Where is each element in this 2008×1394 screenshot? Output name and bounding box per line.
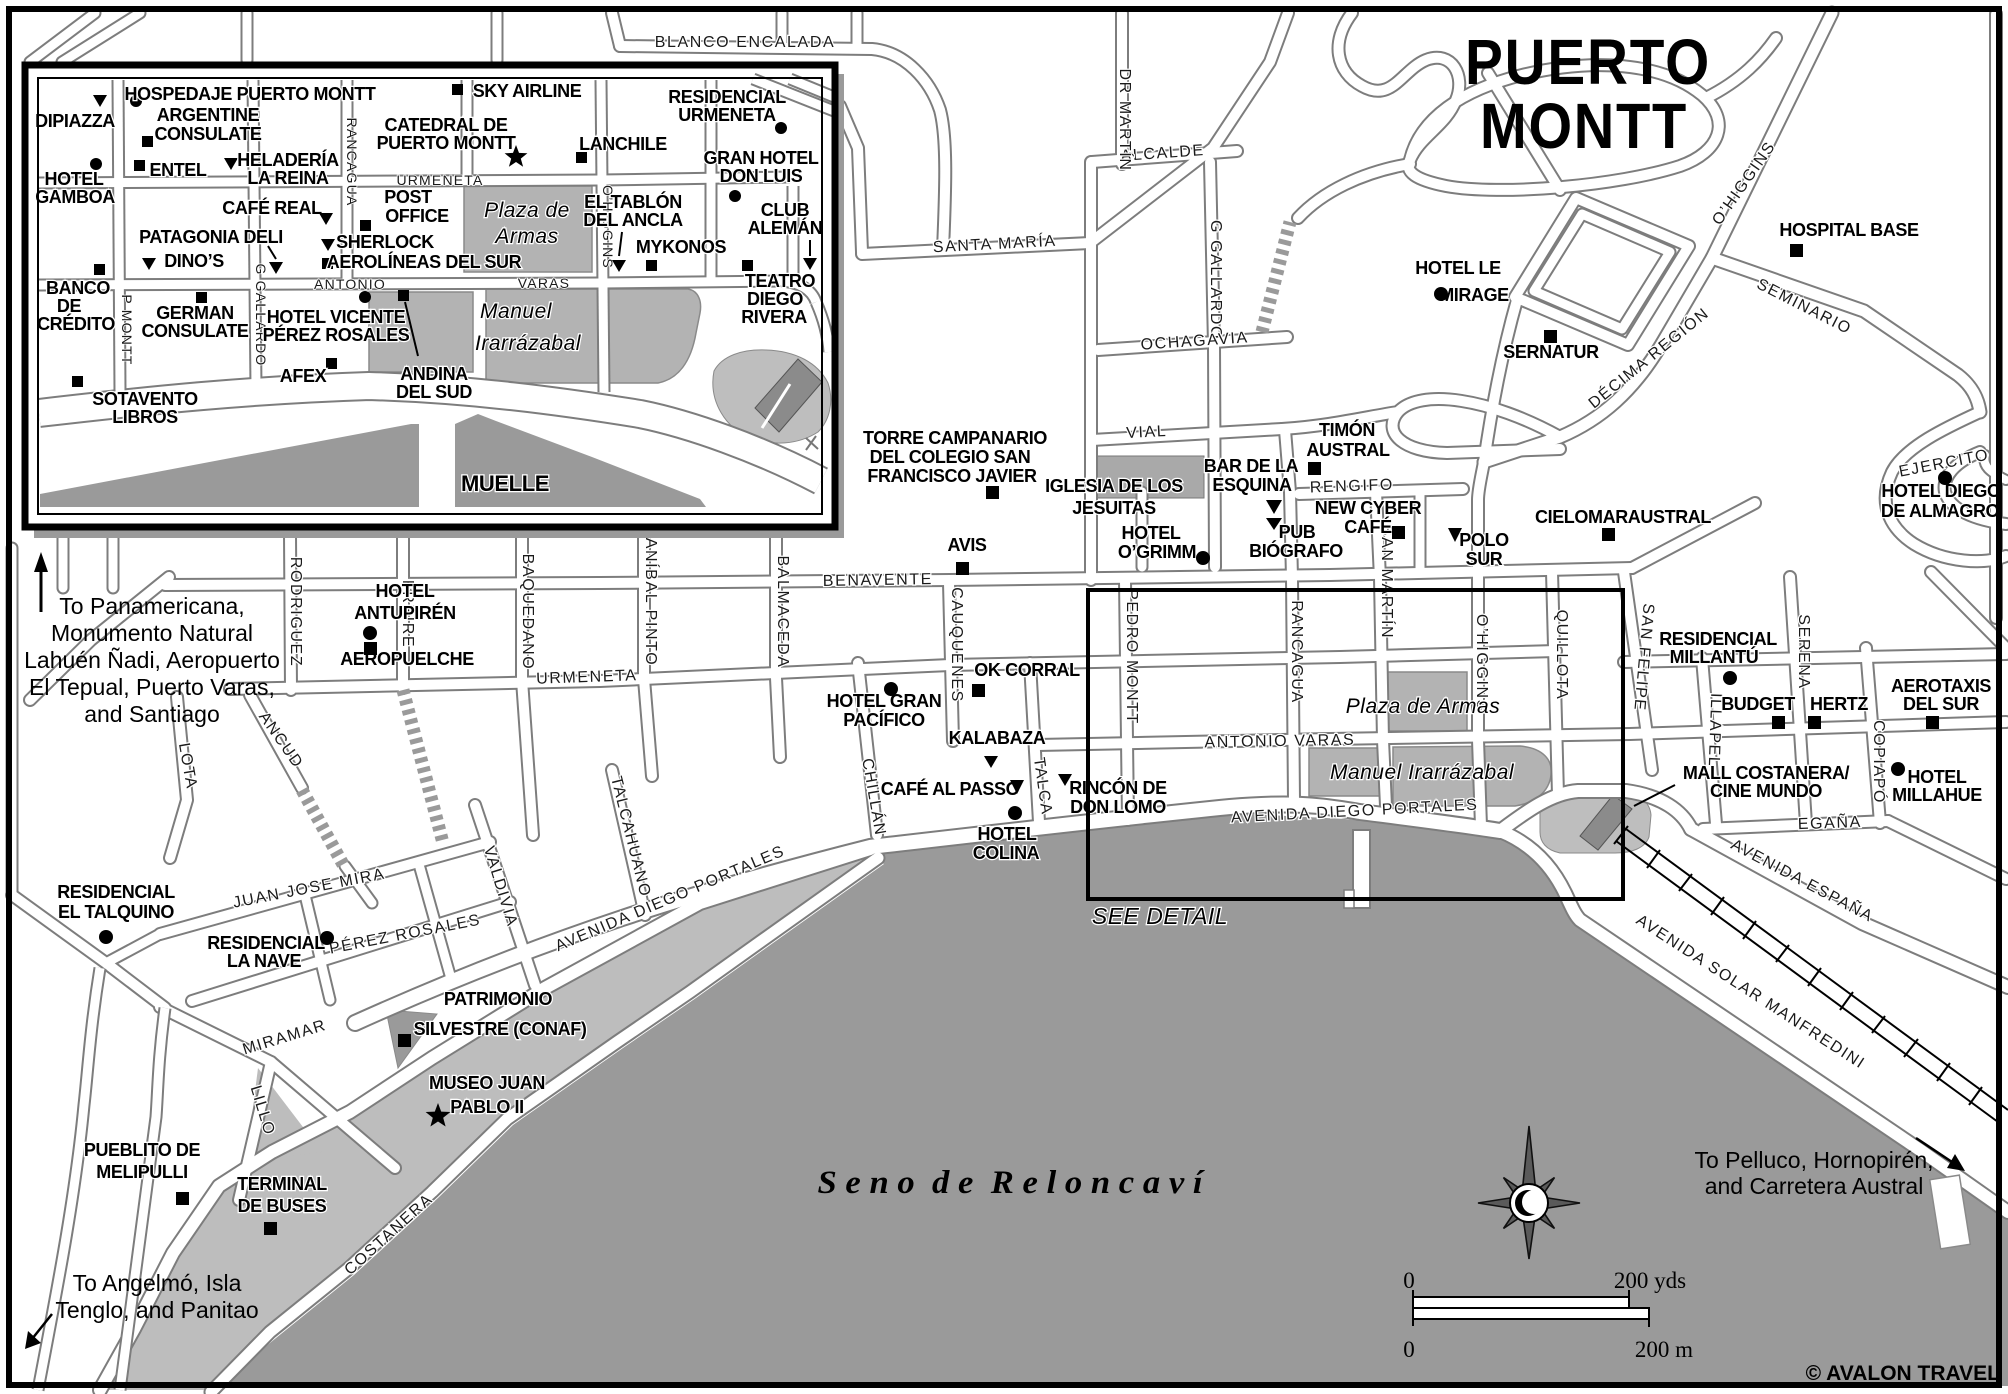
svg-text:and Carretera Austral: and Carretera Austral <box>1705 1173 1924 1199</box>
svg-text:RODRIGUEZ: RODRIGUEZ <box>287 557 304 667</box>
svg-text:ALEMÁN: ALEMÁN <box>748 217 823 238</box>
svg-text:DEL SUD: DEL SUD <box>396 382 472 402</box>
svg-text:Plaza de: Plaza de <box>484 199 570 222</box>
svg-text:HOTEL: HOTEL <box>978 824 1037 844</box>
svg-text:ANTONIO: ANTONIO <box>314 276 386 292</box>
svg-text:PUERTO: PUERTO <box>1465 26 1711 98</box>
svg-text:and Santiago: and Santiago <box>84 701 220 727</box>
svg-text:SEE DETAIL: SEE DETAIL <box>1092 903 1228 929</box>
svg-text:SHERLOCK: SHERLOCK <box>336 232 434 252</box>
svg-text:DIPIAZZA: DIPIAZZA <box>35 111 115 131</box>
svg-text:AEROTAXIS: AEROTAXIS <box>1891 676 1991 696</box>
svg-text:FRANCISCO JAVIER: FRANCISCO JAVIER <box>867 466 1037 486</box>
svg-text:PUEBLITO DE: PUEBLITO DE <box>84 1140 201 1160</box>
svg-text:HOTEL: HOTEL <box>1122 523 1181 543</box>
svg-text:© AVALON TRAVEL: © AVALON TRAVEL <box>1806 1362 2001 1385</box>
svg-text:SAN MARTÍN: SAN MARTÍN <box>1378 525 1397 639</box>
svg-text:AUSTRAL: AUSTRAL <box>1306 440 1390 460</box>
svg-text:PATRIMONIO: PATRIMONIO <box>444 989 553 1009</box>
svg-text:KALABAZA: KALABAZA <box>949 728 1046 748</box>
svg-text:AVIS: AVIS <box>947 535 986 555</box>
svg-text:DINO’S: DINO’S <box>164 251 224 271</box>
svg-text:HOTEL: HOTEL <box>45 169 104 189</box>
svg-text:CONSULATE: CONSULATE <box>141 321 248 341</box>
svg-text:HOTEL DIEGO: HOTEL DIEGO <box>1881 481 2001 501</box>
svg-text:SERNATUR: SERNATUR <box>1503 342 1599 362</box>
svg-text:HOTEL: HOTEL <box>376 581 435 601</box>
svg-text:POST: POST <box>384 187 432 207</box>
svg-text:EL TABLÓN: EL TABLÓN <box>584 191 682 212</box>
svg-text:PÉREZ ROSALES: PÉREZ ROSALES <box>263 324 410 345</box>
svg-text:SILVESTRE (CONAF): SILVESTRE (CONAF) <box>414 1019 587 1039</box>
svg-text:200 m: 200 m <box>1635 1337 1693 1362</box>
svg-text:P MONTT: P MONTT <box>119 294 135 365</box>
svg-text:AFEX: AFEX <box>280 366 327 386</box>
svg-text:MUSEO JUAN: MUSEO JUAN <box>429 1073 545 1093</box>
svg-text:URMENETA: URMENETA <box>396 172 483 188</box>
svg-text:ESQUINA: ESQUINA <box>1212 475 1292 495</box>
svg-text:LIBROS: LIBROS <box>112 407 178 427</box>
svg-text:MUELLE: MUELLE <box>461 471 549 496</box>
svg-text:VARAS: VARAS <box>518 275 570 291</box>
svg-text:OK CORRAL: OK CORRAL <box>974 660 1080 680</box>
svg-text:Irarrázabal: Irarrázabal <box>475 332 582 355</box>
svg-text:Armas: Armas <box>493 225 558 248</box>
svg-text:MILLANTÚ: MILLANTÚ <box>1670 646 1759 667</box>
svg-text:TIMÓN: TIMÓN <box>1319 419 1375 440</box>
svg-text:ANTONIO VARAS: ANTONIO VARAS <box>1204 732 1355 752</box>
svg-text:TORRE CAMPANARIO: TORRE CAMPANARIO <box>863 428 1047 448</box>
svg-text:PABLO II: PABLO II <box>450 1097 523 1117</box>
svg-text:ENTEL: ENTEL <box>149 160 206 180</box>
svg-text:DIEGO: DIEGO <box>747 289 803 309</box>
svg-text:MILLAHUE: MILLAHUE <box>1892 785 1982 805</box>
svg-text:CAUQUENES: CAUQUENES <box>948 587 965 703</box>
svg-text:HOTEL LE: HOTEL LE <box>1415 258 1501 278</box>
svg-text:BALMACEDA: BALMACEDA <box>774 555 791 668</box>
svg-text:RESIDENCIAL: RESIDENCIAL <box>57 882 175 902</box>
svg-text:BAQUEDANO: BAQUEDANO <box>519 554 536 671</box>
svg-text:IGLESIA DE LOS: IGLESIA DE LOS <box>1045 476 1183 496</box>
svg-text:DR MARTÍN: DR MARTÍN <box>1116 69 1135 172</box>
svg-text:DEL SUR: DEL SUR <box>1903 694 1979 714</box>
svg-text:COLINA: COLINA <box>973 843 1040 863</box>
svg-text:Manuel: Manuel <box>480 300 553 323</box>
svg-text:MELIPULLI: MELIPULLI <box>96 1162 187 1182</box>
svg-text:Plaza de Armas: Plaza de Armas <box>1346 695 1500 718</box>
svg-text:MYKONOS: MYKONOS <box>636 237 727 257</box>
svg-text:BLANCO ENCALADA: BLANCO ENCALADA <box>655 34 836 51</box>
svg-text:DE ALMAGRO: DE ALMAGRO <box>1881 501 2000 521</box>
svg-text:ANÍBAL PINTO: ANÍBAL PINTO <box>642 538 661 667</box>
svg-text:PACÍFICO: PACÍFICO <box>843 709 925 730</box>
svg-text:JESUITAS: JESUITAS <box>1072 498 1156 518</box>
svg-text:PATAGONIA DELI: PATAGONIA DELI <box>139 227 283 247</box>
svg-text:0: 0 <box>1403 1268 1415 1293</box>
svg-text:RANCAGUA: RANCAGUA <box>344 118 360 207</box>
svg-text:SOTAVENTO: SOTAVENTO <box>92 389 198 409</box>
svg-text:CATEDRAL DE: CATEDRAL DE <box>385 115 508 135</box>
svg-text:To Panamericana,: To Panamericana, <box>59 593 244 619</box>
svg-text:CAFÉ AL PASSO: CAFÉ AL PASSO <box>881 778 1020 799</box>
svg-text:CAFÉ: CAFÉ <box>1344 516 1392 537</box>
svg-text:HOTEL GRAN: HOTEL GRAN <box>827 691 942 711</box>
svg-text:AEROPUELCHE: AEROPUELCHE <box>340 649 474 669</box>
svg-text:DON LUIS: DON LUIS <box>720 166 803 186</box>
svg-text:HERTZ: HERTZ <box>1810 694 1868 714</box>
svg-text:PEDRO MONTT: PEDRO MONTT <box>1123 589 1140 725</box>
svg-text:COPIAPÓ: COPIAPÓ <box>1870 720 1889 804</box>
svg-text:RESIDENCIAL: RESIDENCIAL <box>668 87 786 107</box>
svg-text:HOSPEDAJE PUERTO MONTT: HOSPEDAJE PUERTO MONTT <box>125 84 376 104</box>
svg-text:AEROLÍNEAS DEL SUR: AEROLÍNEAS DEL SUR <box>327 251 522 272</box>
svg-text:DON LOMO: DON LOMO <box>1070 797 1166 817</box>
svg-text:GRAN HOTEL: GRAN HOTEL <box>704 148 819 168</box>
svg-text:S e n o d e R e l o n c a v: S e n o d e R e l o n c a v í <box>818 1165 1206 1201</box>
svg-text:Manuel Irarrázabal: Manuel Irarrázabal <box>1330 761 1515 784</box>
svg-text:CRÉDITO: CRÉDITO <box>37 313 115 334</box>
svg-text:RENGIFO: RENGIFO <box>1310 477 1395 497</box>
svg-text:RINCÓN DE: RINCÓN DE <box>1069 777 1167 798</box>
svg-text:HOSPITAL BASE: HOSPITAL BASE <box>1779 220 1919 240</box>
svg-text:PUB: PUB <box>1279 522 1316 542</box>
svg-text:LA REINA: LA REINA <box>247 168 329 188</box>
svg-text:0: 0 <box>1403 1337 1415 1362</box>
svg-text:HELADERÍA: HELADERÍA <box>237 149 339 170</box>
svg-text:ANTUPIRÉN: ANTUPIRÉN <box>354 602 455 623</box>
svg-text:MALL COSTANERA/: MALL COSTANERA/ <box>1683 763 1850 783</box>
svg-text:BENAVENTE: BENAVENTE <box>823 571 933 590</box>
svg-text:BUDGET: BUDGET <box>1721 694 1795 714</box>
svg-text:Lahuén Ñadi, Aeropuerto: Lahuén Ñadi, Aeropuerto <box>24 647 280 673</box>
svg-text:ARGENTINE: ARGENTINE <box>157 105 260 125</box>
svg-text:200 yds: 200 yds <box>1614 1268 1686 1293</box>
svg-text:DE BUSES: DE BUSES <box>238 1196 327 1216</box>
svg-text:MONTT: MONTT <box>1480 90 1688 162</box>
svg-text:El Tepual, Puerto Varas,: El Tepual, Puerto Varas, <box>29 674 275 700</box>
svg-text:RESIDENCIAL: RESIDENCIAL <box>1659 629 1777 649</box>
svg-text:MIRAGE: MIRAGE <box>1439 285 1509 305</box>
svg-text:SERENA: SERENA <box>1795 614 1812 689</box>
svg-text:CONSULATE: CONSULATE <box>154 124 261 144</box>
svg-text:HOTEL: HOTEL <box>1908 767 1967 787</box>
svg-text:RANCAGUA: RANCAGUA <box>1288 600 1305 703</box>
svg-text:CLUB: CLUB <box>761 200 810 220</box>
svg-text:CIELOMARAUSTRAL: CIELOMARAUSTRAL <box>1535 507 1711 527</box>
svg-text:CINE MUNDO: CINE MUNDO <box>1710 781 1822 801</box>
svg-text:GAMBOA: GAMBOA <box>35 187 115 207</box>
svg-text:URMENETA: URMENETA <box>678 105 776 125</box>
svg-text:To Pelluco, Hornopirén,: To Pelluco, Hornopirén, <box>1694 1147 1933 1173</box>
svg-text:QUILLOTA: QUILLOTA <box>1553 610 1570 701</box>
svg-text:TERMINAL: TERMINAL <box>237 1174 327 1194</box>
svg-text:BAR DE LA: BAR DE LA <box>1204 456 1299 476</box>
svg-text:LA NAVE: LA NAVE <box>227 951 302 971</box>
svg-text:SKY AIRLINE: SKY AIRLINE <box>473 81 582 101</box>
svg-text:O’GRIMM: O’GRIMM <box>1118 542 1196 562</box>
svg-text:OFFICE: OFFICE <box>385 206 449 226</box>
svg-text:TEATRO: TEATRO <box>745 271 816 291</box>
svg-text:LANCHILE: LANCHILE <box>579 134 667 154</box>
svg-text:BANCO: BANCO <box>46 278 110 298</box>
svg-text:VIAL: VIAL <box>1126 423 1168 442</box>
svg-text:Monumento Natural: Monumento Natural <box>51 620 253 646</box>
svg-text:EL TALQUINO: EL TALQUINO <box>58 902 174 922</box>
svg-text:Tenglo, and Panitao: Tenglo, and Panitao <box>55 1297 258 1323</box>
svg-text:PUERTO MONTT: PUERTO MONTT <box>377 133 516 153</box>
svg-text:NEW CYBER: NEW CYBER <box>1315 498 1422 518</box>
svg-text:RIVERA: RIVERA <box>741 307 807 327</box>
svg-text:DEL COLEGIO SAN: DEL COLEGIO SAN <box>870 447 1031 467</box>
svg-text:ANDINA: ANDINA <box>400 364 468 384</box>
svg-text:DEL ANCLA: DEL ANCLA <box>583 210 683 230</box>
svg-text:BIÓGRAFO: BIÓGRAFO <box>1249 540 1343 561</box>
svg-text:DE: DE <box>57 296 82 316</box>
svg-text:CAFÉ REAL: CAFÉ REAL <box>222 197 322 218</box>
svg-text:POLO: POLO <box>1459 530 1509 550</box>
svg-text:HOTEL VICENTE: HOTEL VICENTE <box>267 307 406 327</box>
svg-text:GERMAN: GERMAN <box>156 303 234 323</box>
svg-text:URMENETA: URMENETA <box>536 667 638 688</box>
svg-text:RESIDENCIAL: RESIDENCIAL <box>207 933 325 953</box>
svg-text:SUR: SUR <box>1466 549 1503 569</box>
svg-text:To Angelmó, Isla: To Angelmó, Isla <box>73 1270 242 1296</box>
svg-text:G GALLARDO: G GALLARDO <box>1207 220 1224 340</box>
